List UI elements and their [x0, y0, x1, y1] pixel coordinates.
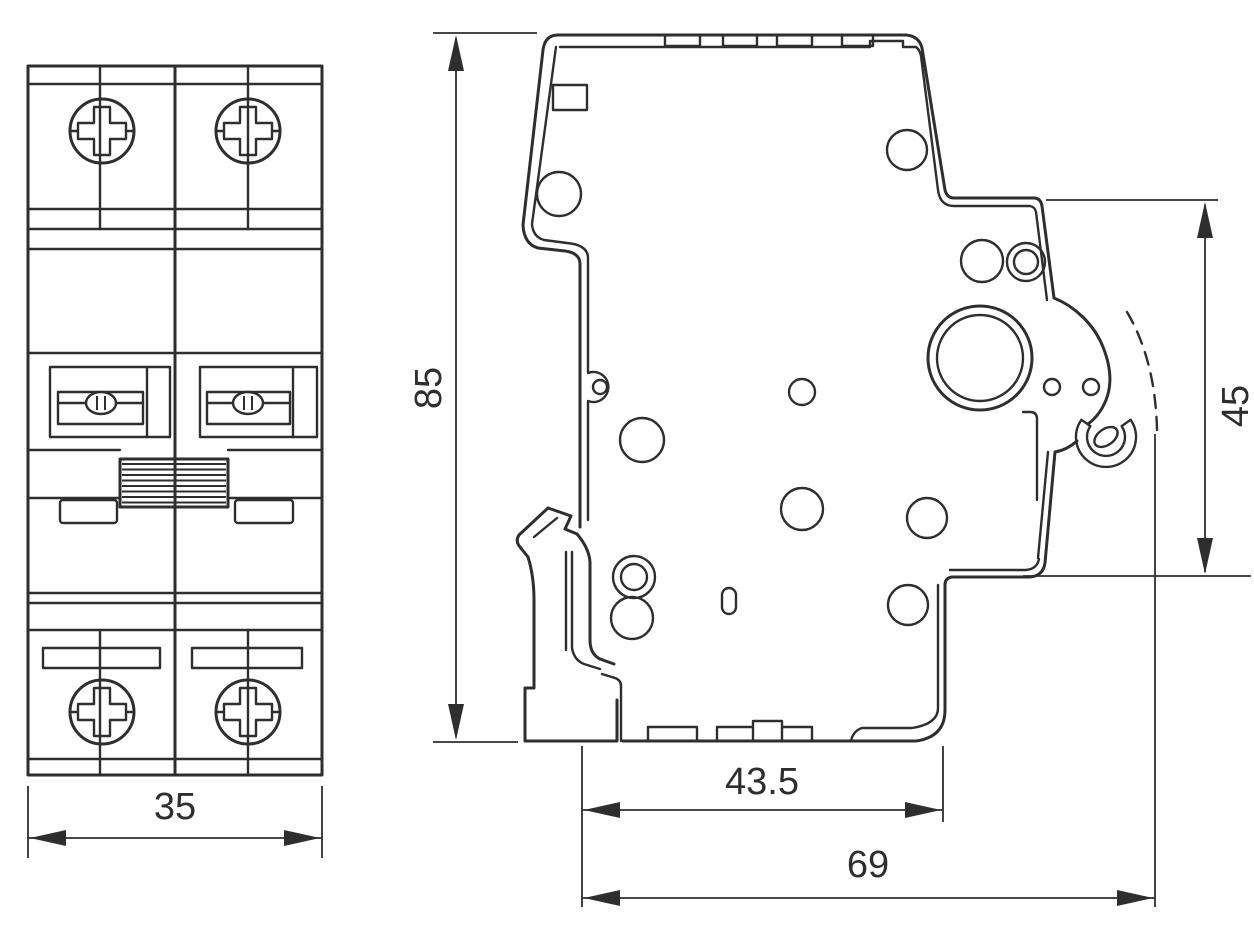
dimension-label-body-depth: 43.5	[725, 761, 799, 803]
dimension-label-height: 85	[408, 367, 450, 409]
dimension-label-total-depth: 69	[847, 844, 889, 886]
technical-drawing-page: 35 85 45 43.5 69	[0, 0, 1254, 928]
calibration-screw-right	[233, 392, 263, 414]
circuit-breaker-dimension-drawing: 35 85 45 43.5 69	[0, 0, 1254, 928]
dimension-label-latch: 45	[1215, 385, 1254, 427]
calibration-screw-left	[86, 392, 116, 414]
dimension-label-width: 35	[154, 786, 196, 828]
